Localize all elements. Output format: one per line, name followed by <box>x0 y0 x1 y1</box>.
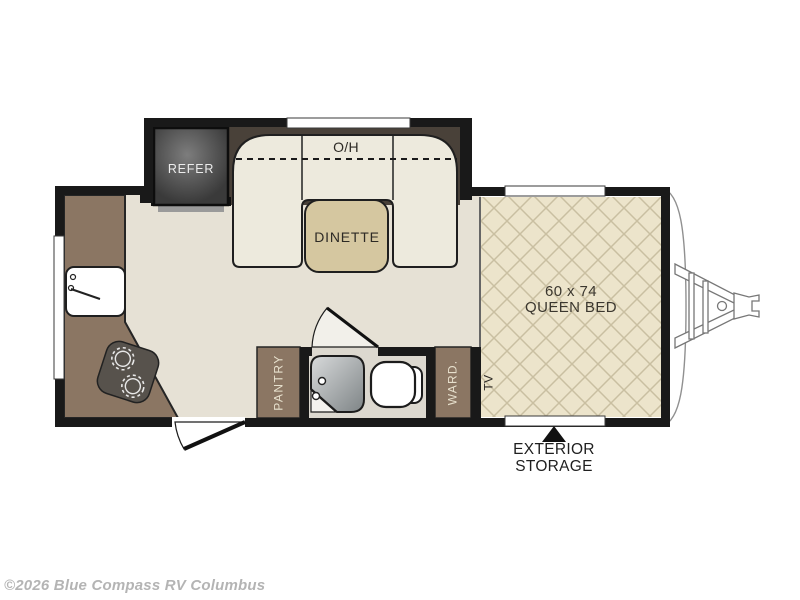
floorplan-canvas: REFER O/H DINETTE PANTRY WARD. TV 60 x 7… <box>0 0 800 600</box>
exterior-storage-arrow-icon <box>542 426 566 442</box>
window <box>287 118 410 128</box>
dinette-label: DINETTE <box>297 229 397 245</box>
shower-control-icon <box>319 378 326 385</box>
window <box>54 236 64 379</box>
overhead-cabinet-label: O/H <box>306 139 386 155</box>
toilet <box>371 362 415 407</box>
bed-name-text: QUEEN BED <box>491 300 651 316</box>
window <box>505 416 605 426</box>
floorplan-drawing <box>0 0 800 600</box>
pantry-label: PANTRY <box>272 343 287 423</box>
exterior-storage-label: EXTERIOR STORAGE <box>474 441 634 475</box>
bed-size-text: 60 x 74 <box>491 284 651 300</box>
trailer-hitch <box>675 264 759 348</box>
shower-control-icon <box>313 393 320 400</box>
kitchen-sink <box>66 267 125 316</box>
hitch-coupler <box>734 293 759 319</box>
wardrobe-label: WARD. <box>446 343 461 423</box>
refrigerator-shadow <box>158 206 224 212</box>
refrigerator-label: REFER <box>153 162 229 176</box>
tv-label: TV <box>482 354 497 412</box>
window <box>505 186 605 196</box>
queen-bed-label: 60 x 74 QUEEN BED <box>491 284 651 316</box>
dealer-watermark: ©2026 Blue Compass RV Columbus <box>4 577 265 594</box>
hitch-jack-icon <box>718 302 727 311</box>
